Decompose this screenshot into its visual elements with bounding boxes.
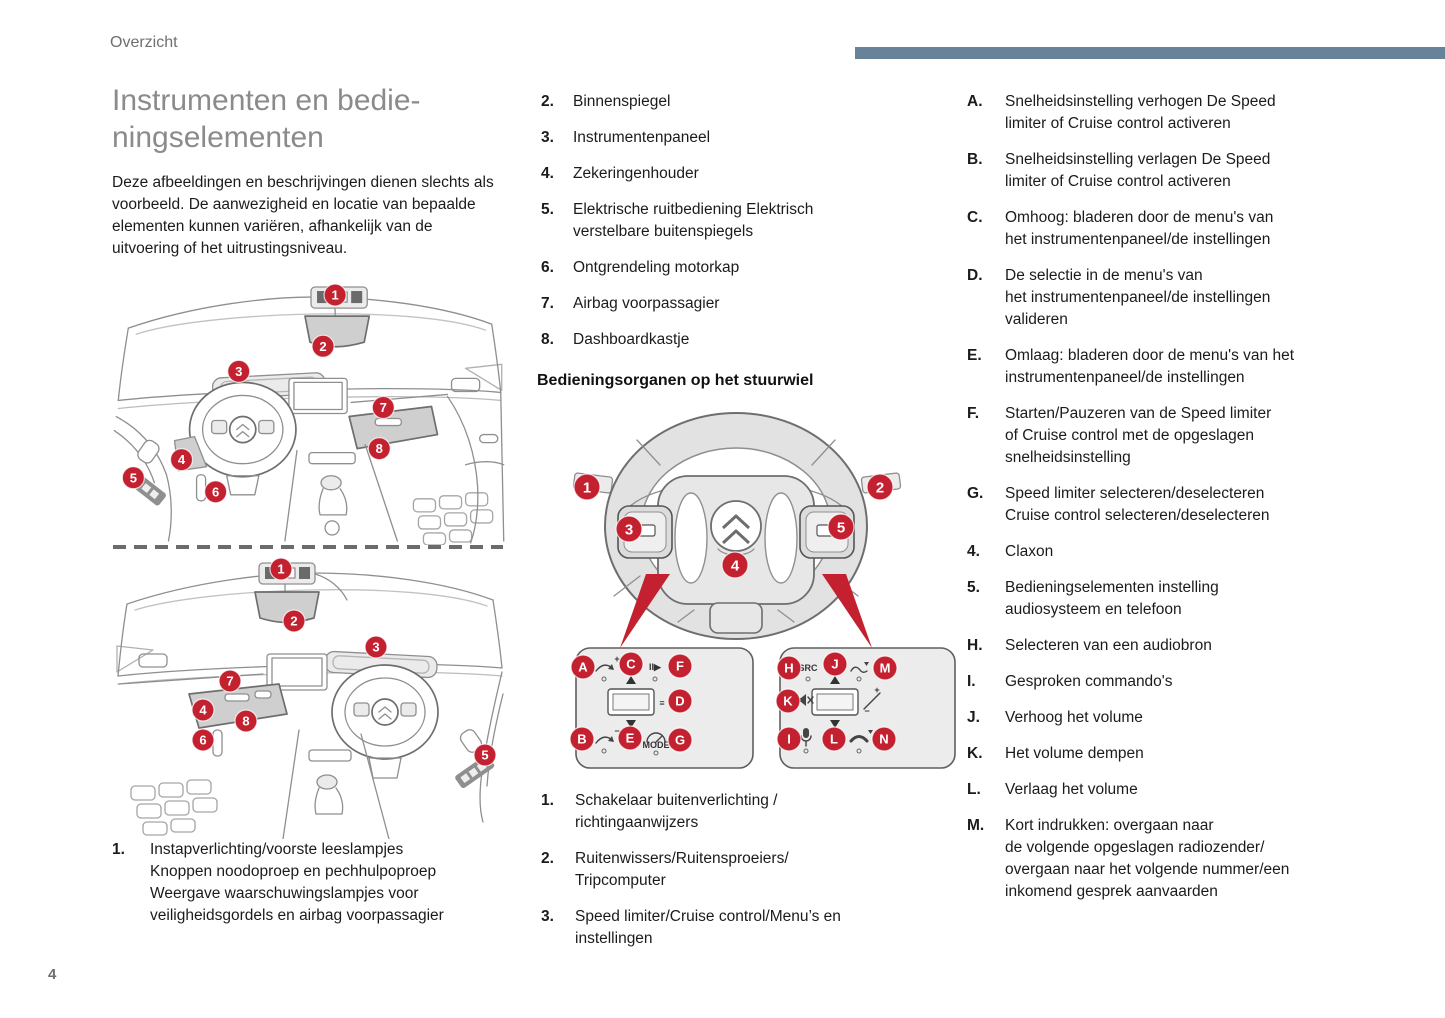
touchscreen [289, 378, 347, 413]
marker-N: N [872, 727, 896, 751]
item-J: J.Verhoog het volume [967, 707, 1407, 729]
svg-text:B: B [577, 732, 586, 747]
right-controls-panel: SRC + − [776, 648, 955, 768]
item-letter: B. [967, 149, 1005, 171]
wheel-item-list: 1.Schakelaar buitenverlichting / richtin… [541, 790, 961, 964]
marker-B: B [570, 727, 594, 751]
svg-text:H: H [784, 661, 793, 676]
item-B: B.Snelheidsinstelling verlagen De Speed … [967, 149, 1407, 193]
item-number: 2. [541, 91, 573, 113]
item-number: 4. [541, 163, 573, 185]
item-letter: A. [967, 91, 1005, 113]
item-number: 1. [112, 839, 150, 861]
left-item-list: 1. Instapverlichting/voorste leeslampjes… [112, 839, 522, 941]
svg-text:N: N [879, 732, 888, 747]
middle-item-list: 2.Binnenspiegel 3.Instrumentenpaneel 4.Z… [541, 91, 961, 365]
item-number: 3. [541, 127, 573, 149]
item-text: Bedieningselementen instelling audiosyst… [1005, 577, 1219, 621]
svg-text:3: 3 [235, 364, 242, 379]
item-text: Snelheidsinstelling verhogen De Speed li… [1005, 91, 1276, 135]
marker-1: 1 [270, 558, 292, 580]
marker-8: 8 [235, 710, 257, 732]
svg-text:M: M [880, 661, 891, 676]
marker-2: 2 [312, 335, 334, 357]
item-text: Zekeringenhouder [573, 163, 699, 185]
svg-text:4: 4 [178, 452, 186, 467]
item-8: 8.Dashboardkastje [541, 329, 961, 351]
svg-text:A: A [578, 660, 588, 675]
item-M: M.Kort indrukken: overgaan naar de volge… [967, 815, 1407, 903]
marker-6: 6 [192, 729, 214, 751]
marker-J: J [823, 652, 847, 676]
item-letter: K. [967, 743, 1005, 765]
marker-F: F [668, 654, 692, 678]
svg-text:I: I [787, 732, 791, 747]
item-number: 4. [967, 541, 1005, 563]
marker-E: E [618, 726, 642, 750]
wheel-item-1: 1.Schakelaar buitenverlichting / richtin… [541, 790, 961, 834]
marker-3: 3 [616, 516, 642, 542]
item-text: Instrumentenpaneel [573, 127, 710, 149]
item-text: Claxon [1005, 541, 1053, 563]
item-text: Elektrische ruitbediening Elektrisch ver… [573, 199, 813, 243]
dashed-divider [113, 545, 503, 549]
menu-list-icon: ≡ [659, 698, 664, 708]
item-text: Speed limiter/Cruise control/Menu’s en i… [575, 906, 841, 950]
callout-arrow-right [822, 574, 872, 648]
item-H: H.Selecteren van een audiobron [967, 635, 1407, 657]
svg-text:5: 5 [481, 748, 488, 763]
marker-1: 1 [324, 284, 346, 306]
svg-text:1: 1 [277, 562, 284, 577]
item-letter: I. [967, 671, 1005, 693]
item-F: F.Starten/Pauzeren van de Speed limiter … [967, 403, 1407, 469]
marker-2: 2 [867, 474, 893, 500]
header-accent-bar [855, 47, 1445, 59]
item-text: Het volume dempen [1005, 743, 1144, 765]
marker-6: 6 [205, 481, 227, 503]
marker-2: 2 [283, 610, 305, 632]
marker-A: A [571, 655, 595, 679]
marker-5: 5 [122, 467, 144, 489]
item-number: 5. [541, 199, 573, 221]
wheel-item-2: 2.Ruitenwissers/Ruitensproeiers/ Tripcom… [541, 848, 961, 892]
marker-3: 3 [228, 360, 250, 382]
marker-5: 5 [474, 744, 496, 766]
svg-text:L: L [830, 732, 838, 747]
svg-text:6: 6 [212, 484, 219, 499]
item-1: 1. Instapverlichting/voorste leeslampjes… [112, 839, 522, 927]
marker-G: G [668, 728, 692, 752]
marker-7: 7 [372, 396, 394, 418]
intro-text: Deze afbeeldingen en beschrijvingen dien… [112, 172, 494, 260]
item-text: Verhoog het volume [1005, 707, 1143, 729]
svg-text:2: 2 [319, 339, 326, 354]
marker-4: 4 [722, 552, 748, 578]
item-letter: F. [967, 403, 1005, 425]
running-header: Overzicht [110, 34, 178, 52]
item-text: Omlaag: bladeren door de menu's van het … [1005, 345, 1294, 389]
lettered-item-list: A.Snelheidsinstelling verhogen De Speed … [967, 91, 1407, 917]
svg-text:+: + [874, 685, 879, 695]
item-text: Dashboardkastje [573, 329, 689, 351]
dashboard-illustration-rhd: 1 2 3 4 5 6 7 8 [113, 554, 505, 839]
item-A: A.Snelheidsinstelling verhogen De Speed … [967, 91, 1407, 135]
item-text: De selectie in de menu's van het instrum… [1005, 265, 1270, 331]
svg-text:6: 6 [199, 733, 206, 748]
item-letter: D. [967, 265, 1005, 287]
item-letter: J. [967, 707, 1005, 729]
marker-C: C [619, 652, 643, 676]
item-5: 5.Elektrische ruitbediening Elektrisch v… [541, 199, 961, 243]
section-heading: Bedieningsorganen op het stuurwiel [537, 372, 813, 390]
marker-4: 4 [170, 449, 192, 471]
svg-text:3: 3 [625, 521, 633, 538]
svg-text:5: 5 [837, 519, 845, 536]
item-number: 5. [967, 577, 1005, 599]
item-text: Airbag voorpassagier [573, 293, 719, 315]
svg-text:F: F [676, 659, 684, 674]
item-I: I.Gesproken commando's [967, 671, 1407, 693]
item-6: 6.Ontgrendeling motorkap [541, 257, 961, 279]
item-4: 4.Zekeringenhouder [541, 163, 961, 185]
svg-text:8: 8 [242, 714, 249, 729]
marker-1: 1 [574, 474, 600, 500]
manual-page: Overzicht Instrumenten en bedie- ningsel… [0, 0, 1445, 1018]
item-text: Kort indrukken: overgaan naar de volgend… [1005, 815, 1289, 903]
left-controls-panel: + II▶ ≡ − MODE A C [570, 648, 753, 768]
svg-text:C: C [626, 657, 636, 672]
item-number: 3. [541, 906, 575, 928]
marker-7: 7 [219, 670, 241, 692]
svg-text:J: J [831, 657, 838, 672]
item-text: Verlaag het volume [1005, 779, 1138, 801]
item-3: 3.Instrumentenpaneel [541, 127, 961, 149]
item-D: D.De selectie in de menu's van het instr… [967, 265, 1407, 331]
svg-text:8: 8 [376, 441, 383, 456]
item-L: L.Verlaag het volume [967, 779, 1407, 801]
item-number: 6. [541, 257, 573, 279]
item-text: Gesproken commando's [1005, 671, 1173, 693]
svg-text:≡: ≡ [659, 698, 664, 708]
item-letter: G. [967, 483, 1005, 505]
item-letter: H. [967, 635, 1005, 657]
item-E: E.Omlaag: bladeren door de menu's van he… [967, 345, 1407, 389]
item-letter: C. [967, 207, 1005, 229]
page-number: 4 [48, 966, 56, 983]
marker-4: 4 [192, 699, 214, 721]
marker-I: I [777, 727, 801, 751]
svg-text:3: 3 [372, 640, 379, 655]
svg-text:K: K [783, 694, 793, 709]
marker-8: 8 [368, 438, 390, 460]
item-text: Starten/Pauzeren van de Speed limiter of… [1005, 403, 1271, 469]
item-number: 7. [541, 293, 573, 315]
item-text: Snelheidsinstelling verlagen De Speed li… [1005, 149, 1270, 193]
hood-release-lever [197, 475, 206, 501]
item-5: 5.Bedieningselementen instelling audiosy… [967, 577, 1407, 621]
svg-text:2: 2 [876, 479, 884, 496]
svg-text:5: 5 [130, 470, 137, 485]
steering-wheel-illustration: + II▶ ≡ − MODE A C [558, 396, 960, 776]
item-text: Ruitenwissers/Ruitensproeiers/ Tripcompu… [575, 848, 789, 892]
item-text: Schakelaar buitenverlichting / richtinga… [575, 790, 777, 834]
svg-text:7: 7 [226, 674, 233, 689]
page-title: Instrumenten en bedie- ningselementen [112, 82, 512, 156]
svg-text:4: 4 [199, 703, 207, 718]
item-2: 2.Binnenspiegel [541, 91, 961, 113]
svg-text:G: G [675, 733, 685, 748]
item-text: Instapverlichting/voorste leeslampjes Kn… [150, 839, 444, 927]
svg-text:4: 4 [731, 557, 740, 574]
item-letter: L. [967, 779, 1005, 801]
svg-text:2: 2 [290, 614, 297, 629]
item-number: 1. [541, 790, 575, 812]
svg-text:MODE: MODE [643, 740, 670, 750]
item-C: C.Omhoog: bladeren door de menu's van he… [967, 207, 1407, 251]
item-text: Binnenspiegel [573, 91, 670, 113]
item-7: 7.Airbag voorpassagier [541, 293, 961, 315]
svg-text:E: E [626, 731, 635, 746]
svg-text:1: 1 [583, 479, 591, 496]
marker-D: D [668, 689, 692, 713]
passenger-seat [131, 780, 217, 835]
marker-H: H [777, 656, 801, 680]
svg-text:1: 1 [331, 288, 338, 303]
hood-release-lever [213, 730, 222, 756]
marker-L: L [822, 727, 846, 751]
svg-text:II▶: II▶ [649, 662, 662, 672]
item-text: Selecteren van een audiobron [1005, 635, 1212, 657]
marker-5: 5 [828, 514, 854, 540]
item-K: K.Het volume dempen [967, 743, 1407, 765]
marker-K: K [776, 689, 800, 713]
marker-M: M [873, 656, 897, 680]
item-4: 4.Claxon [967, 541, 1407, 563]
item-text: Ontgrendeling motorkap [573, 257, 739, 279]
svg-text:D: D [675, 694, 684, 709]
svg-text:−: − [864, 706, 869, 716]
item-text: Speed limiter selecteren/deselecteren Cr… [1005, 483, 1270, 527]
wheel-item-3: 3.Speed limiter/Cruise control/Menu’s en… [541, 906, 961, 950]
item-number: 2. [541, 848, 575, 870]
marker-3: 3 [365, 636, 387, 658]
dashboard-illustration-lhd: 1 2 3 4 5 6 7 8 [112, 282, 506, 545]
item-text: Omhoog: bladeren door de menu's van het … [1005, 207, 1273, 251]
item-G: G.Speed limiter selecteren/deselecteren … [967, 483, 1407, 527]
item-letter: M. [967, 815, 1005, 837]
item-letter: E. [967, 345, 1005, 367]
item-number: 8. [541, 329, 573, 351]
svg-text:7: 7 [380, 400, 387, 415]
